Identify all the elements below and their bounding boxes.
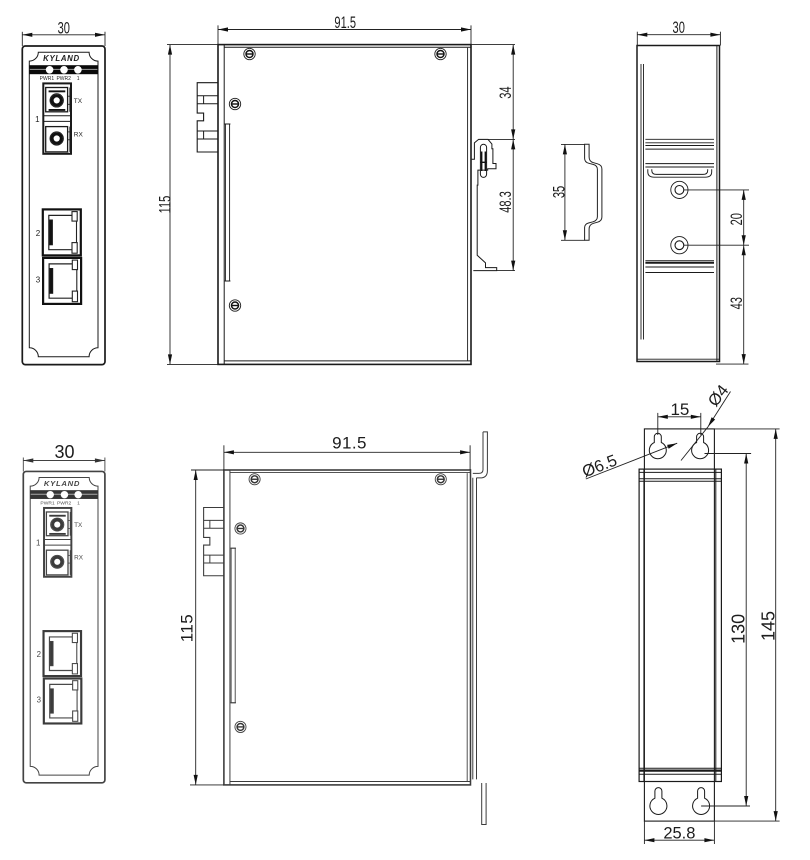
svg-text:115: 115 bbox=[177, 614, 196, 642]
svg-text:Ø6.5: Ø6.5 bbox=[580, 451, 620, 481]
svg-text:91.5: 91.5 bbox=[334, 14, 356, 33]
svg-text:20: 20 bbox=[728, 213, 747, 225]
svg-text:30: 30 bbox=[673, 19, 685, 38]
svg-text:91.5: 91.5 bbox=[332, 433, 367, 452]
svg-text:30: 30 bbox=[58, 19, 70, 38]
svg-text:48.3: 48.3 bbox=[497, 191, 516, 213]
svg-text:43: 43 bbox=[728, 297, 747, 309]
svg-text:25.8: 25.8 bbox=[663, 824, 695, 842]
svg-text:34: 34 bbox=[497, 86, 516, 98]
svg-text:35: 35 bbox=[550, 186, 569, 198]
svg-text:Ø4: Ø4 bbox=[705, 382, 733, 410]
svg-text:15: 15 bbox=[670, 400, 689, 419]
svg-text:145: 145 bbox=[759, 611, 779, 641]
svg-text:115: 115 bbox=[156, 196, 175, 214]
svg-text:30: 30 bbox=[54, 442, 74, 462]
svg-text:130: 130 bbox=[729, 614, 749, 644]
